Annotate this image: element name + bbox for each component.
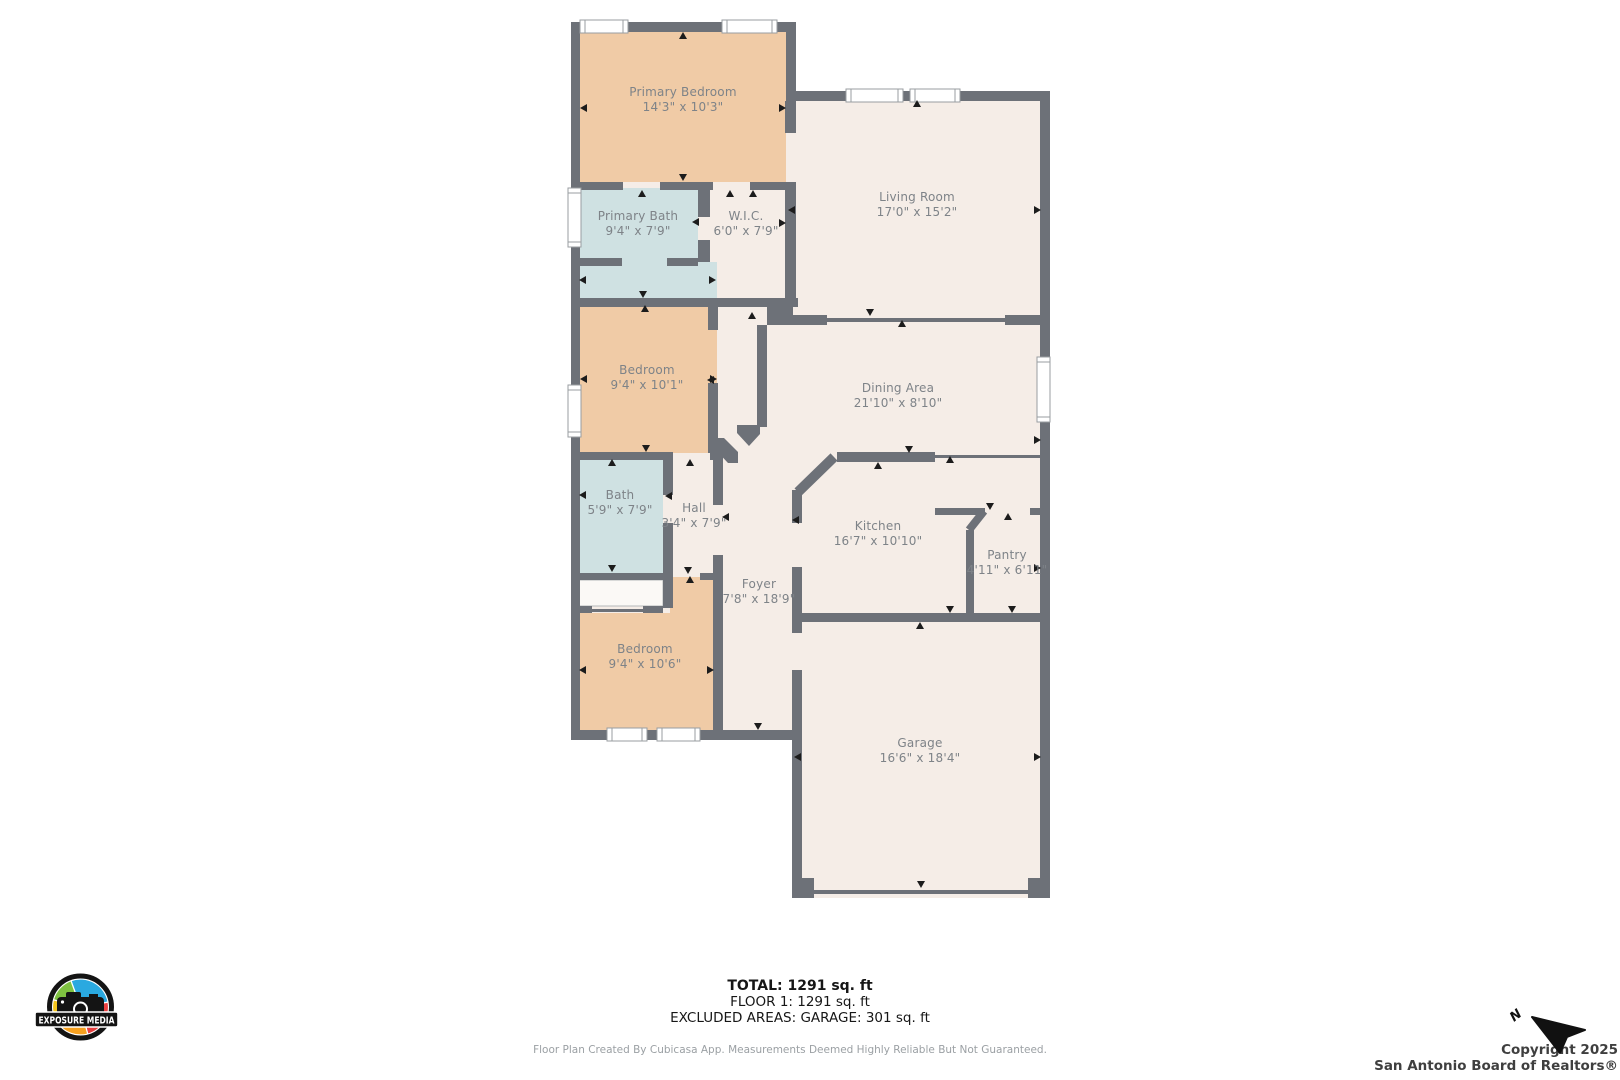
- room-name: Kitchen: [834, 519, 923, 534]
- window-icon: [568, 385, 581, 437]
- room-label-garage: Garage 16'6" x 18'4": [880, 736, 961, 766]
- room-label-foyer: Foyer 7'8" x 18'9": [723, 577, 796, 607]
- room-dims: 9'4" x 10'1": [611, 378, 684, 393]
- room-label-wic: W.I.C. 6'0" x 7'9": [713, 209, 778, 239]
- room-label-primary-bedroom: Primary Bedroom 14'3" x 10'3": [629, 85, 736, 115]
- room-label-dining-area: Dining Area 21'10" x 8'10": [854, 381, 943, 411]
- room-label-living-room: Living Room 17'0" x 15'2": [877, 190, 958, 220]
- floor-area-text: FLOOR 1: 1291 sq. ft: [670, 995, 930, 1011]
- window-icon: [607, 728, 647, 741]
- disclaimer-text: Floor Plan Created By Cubicasa App. Meas…: [533, 1044, 1047, 1056]
- total-area-text: TOTAL: 1291 sq. ft: [670, 977, 930, 995]
- exposure-media-logo: EXPOSURE MEDIA: [33, 972, 123, 1046]
- room-name: Bedroom: [609, 642, 682, 657]
- logo-banner: EXPOSURE MEDIA: [35, 1012, 118, 1027]
- room-name: Bedroom: [611, 363, 684, 378]
- room-name: Dining Area: [854, 381, 943, 396]
- excluded-area-text: EXCLUDED AREAS: GARAGE: 301 sq. ft: [670, 1011, 930, 1027]
- room-name: Foyer: [723, 577, 796, 592]
- area-summary: TOTAL: 1291 sq. ft FLOOR 1: 1291 sq. ft …: [670, 977, 930, 1026]
- floor-plan-page: Primary Bedroom 14'3" x 10'3" Living Roo…: [0, 0, 1620, 1080]
- room-name: Primary Bedroom: [629, 85, 736, 100]
- room-label-kitchen: Kitchen 16'7" x 10'10": [834, 519, 923, 549]
- room-name: Hall: [661, 501, 726, 516]
- room-name: Bath: [587, 488, 652, 503]
- room-name: Garage: [880, 736, 961, 751]
- room-dims: 17'0" x 15'2": [877, 205, 958, 220]
- room-name: W.I.C.: [713, 209, 778, 224]
- window-icon: [722, 20, 777, 33]
- room-dims: 21'10" x 8'10": [854, 396, 943, 411]
- room-dims: 4'11" x 6'11": [967, 563, 1048, 578]
- room-label-pantry: Pantry 4'11" x 6'11": [967, 548, 1048, 578]
- north-arrow: N: [1500, 998, 1610, 1068]
- floor-plan-drawing: [0, 0, 1620, 1080]
- room-dims: 9'4" x 10'6": [609, 657, 682, 672]
- room-name: Living Room: [877, 190, 958, 205]
- room-label-bedroom2: Bedroom 9'4" x 10'6": [609, 642, 682, 672]
- north-label: N: [1507, 1007, 1525, 1026]
- room-dims: 16'6" x 18'4": [880, 751, 961, 766]
- room-dims: 9'4" x 7'9": [598, 224, 678, 239]
- room-dims: 16'7" x 10'10": [834, 534, 923, 549]
- room-dims: 5'9" x 7'9": [587, 503, 652, 518]
- room-dims: 14'3" x 10'3": [629, 100, 736, 115]
- window-icon: [1037, 357, 1050, 422]
- room-name: Pantry: [967, 548, 1048, 563]
- room-dims: 6'0" x 7'9": [713, 224, 778, 239]
- room-label-primary-bath: Primary Bath 9'4" x 7'9": [598, 209, 678, 239]
- window-icon: [846, 89, 903, 102]
- room-label-hall: Hall 3'4" x 7'9": [661, 501, 726, 531]
- window-icon: [657, 728, 700, 741]
- primary-bath-area: [578, 188, 717, 298]
- north-arrow-icon: N: [1500, 998, 1610, 1064]
- logo-text: EXPOSURE MEDIA: [39, 1016, 115, 1027]
- closet-area: [578, 580, 663, 606]
- window-icon: [910, 89, 960, 102]
- camera-shutter-logo-icon: EXPOSURE MEDIA: [33, 972, 123, 1042]
- room-name: Primary Bath: [598, 209, 678, 224]
- room-label-bath: Bath 5'9" x 7'9": [587, 488, 652, 518]
- room-label-bedroom: Bedroom 9'4" x 10'1": [611, 363, 684, 393]
- window-icon: [580, 20, 628, 33]
- room-dims: 7'8" x 18'9": [723, 592, 796, 607]
- window-icon: [568, 188, 581, 247]
- room-dims: 3'4" x 7'9": [661, 516, 726, 531]
